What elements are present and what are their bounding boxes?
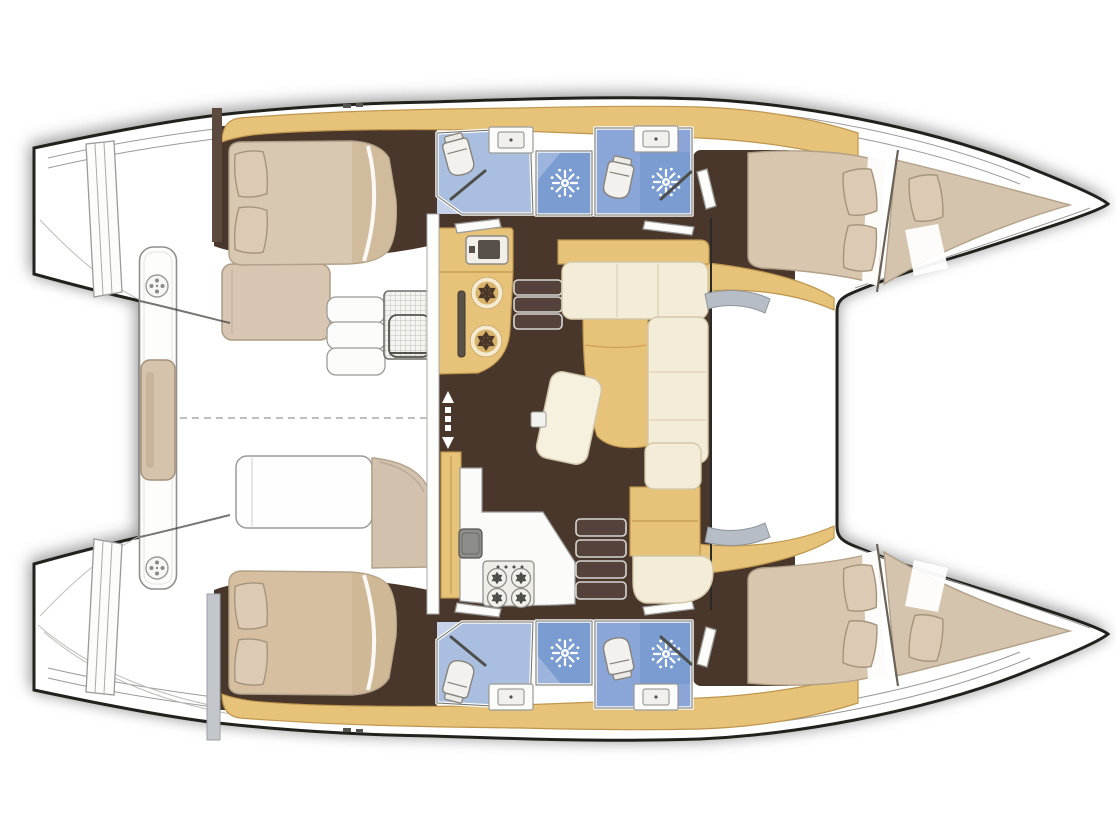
shower-stall-port <box>536 151 592 215</box>
sofa-base-curve <box>633 556 713 603</box>
bathroom-fwd-port <box>595 126 692 215</box>
aft-window-strip <box>207 594 220 740</box>
galley-burner-icon <box>471 326 502 357</box>
cleat-icon <box>356 729 363 733</box>
stove-icon <box>483 561 534 608</box>
deck-hatch-icon <box>146 557 168 579</box>
galley-handle <box>458 291 465 357</box>
sink-icon <box>489 127 533 153</box>
aft-cabin-bed <box>229 141 396 265</box>
table-foot <box>531 412 546 427</box>
shower-stall-starboard <box>536 621 592 685</box>
pillow <box>842 223 879 272</box>
companionway-steps-port <box>514 280 562 329</box>
bathroom-aft-starboard <box>437 622 533 710</box>
galley-oven-icon <box>466 236 508 264</box>
cockpit-bench-port <box>222 264 330 340</box>
cleat-icon <box>343 728 351 732</box>
cockpit-bench-starboard <box>236 456 372 528</box>
sink-icon <box>634 684 678 710</box>
bathroom-fwd-starboard <box>595 621 692 710</box>
aft-bulkhead-strip <box>212 108 222 242</box>
pillow <box>233 150 269 199</box>
sofa-back-trim <box>558 240 709 264</box>
salon-left-wall <box>427 214 439 614</box>
galley-sink-icon <box>459 529 482 558</box>
cleat-icon <box>343 104 351 108</box>
pillow <box>233 638 269 687</box>
pillow <box>842 563 879 612</box>
catamaran-floor-plan <box>0 0 1116 837</box>
aft-crossbeam <box>140 247 177 589</box>
cockpit-seat-pads <box>327 297 386 375</box>
cleat-icon <box>356 103 363 107</box>
sink-icon <box>634 126 678 152</box>
transom-steps <box>86 141 122 695</box>
pillow <box>233 206 269 255</box>
sink-icon <box>489 684 533 710</box>
galley-burner-icon <box>472 278 503 309</box>
pillow <box>233 582 269 631</box>
deck-hatch-icon <box>146 275 168 297</box>
bathroom-aft-port <box>437 127 533 214</box>
